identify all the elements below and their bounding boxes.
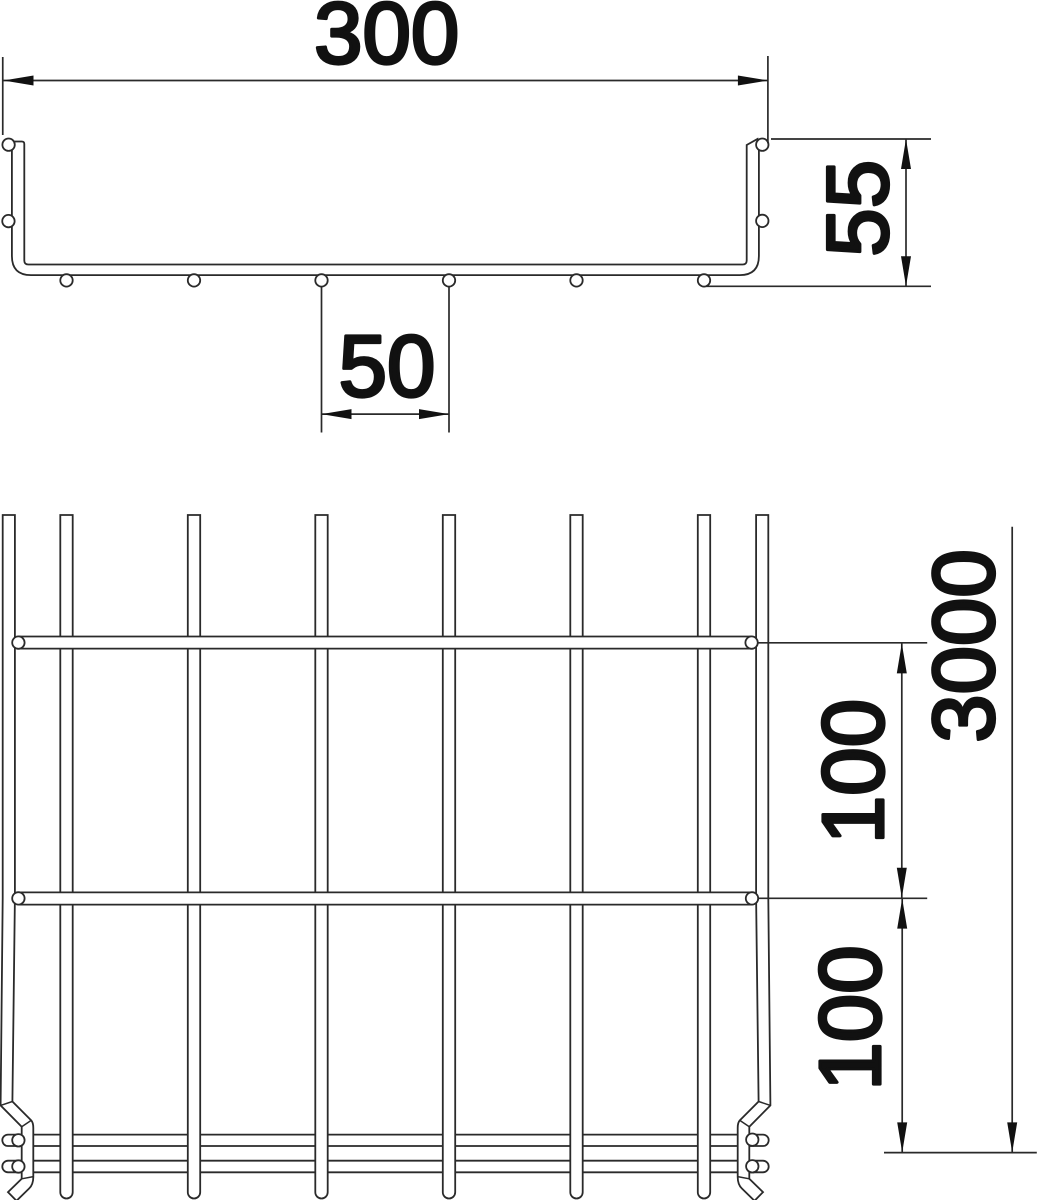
svg-text:55: 55 xyxy=(810,160,907,257)
svg-text:300: 300 xyxy=(314,0,459,82)
svg-text:50: 50 xyxy=(339,318,436,415)
svg-text:3000: 3000 xyxy=(915,549,1012,743)
svg-text:100: 100 xyxy=(805,699,902,844)
svg-text:100: 100 xyxy=(802,945,899,1090)
